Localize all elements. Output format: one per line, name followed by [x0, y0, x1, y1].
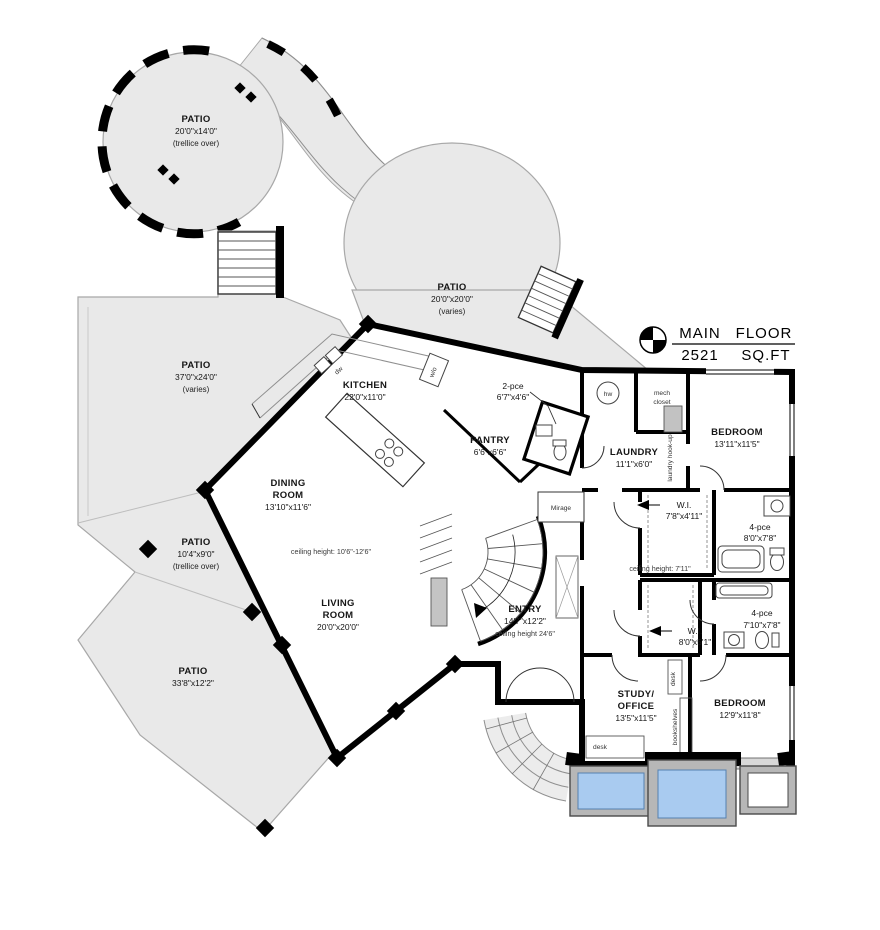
north-compass-icon	[640, 327, 666, 353]
kitchen-dims: 22'0"x11'0"	[344, 392, 385, 402]
entry-ceiling: ceiling height 24'6"	[495, 629, 555, 638]
bedroom-se-name: BEDROOM	[714, 698, 766, 709]
patio-ul-dims: 20'0"x14'0"	[175, 126, 217, 136]
pool-left	[578, 773, 644, 809]
dining-name1: DINING	[270, 478, 305, 489]
study-dims: 13'5"x11'5"	[615, 713, 656, 723]
living-name1: LIVING	[321, 598, 354, 609]
bedroom-ne-name: BEDROOM	[711, 427, 763, 438]
title-block: MAIN FLOOR 2521 SQ.FT	[640, 325, 795, 364]
title-floor: FLOOR	[736, 325, 793, 342]
entry-name: ENTRY	[508, 604, 542, 615]
bath-north-dims: 8'0"x7'8"	[744, 533, 776, 543]
wi-north-name: W.I.	[677, 500, 692, 510]
bedroom-se-dims: 12'9"x11'8"	[719, 710, 760, 720]
pantry-name: PANTRY	[470, 435, 510, 446]
patio-w-dims: 37'0"x24'0"	[175, 372, 217, 382]
floor-plan-svg: MAIN FLOOR 2521 SQ.FT PATIO 20'0"x14'0" …	[0, 0, 880, 930]
patio-ul-name: PATIO	[181, 114, 210, 125]
living-name2: ROOM	[323, 610, 354, 621]
wi-south-dims: 8'0"x5'1"	[679, 637, 711, 647]
ceiling-hall-note: ceiling height: 7'11"	[629, 564, 691, 573]
desk-label-2: desk	[670, 671, 677, 686]
patio-w-name: PATIO	[181, 360, 210, 371]
patio-sw-name: PATIO	[181, 537, 210, 548]
mech-closet-unit	[664, 406, 682, 432]
bath-south-dims: 7'10"x7'8"	[743, 620, 780, 630]
powder-name: 2-pce	[502, 381, 524, 391]
wi-south-name: W.I.	[688, 626, 703, 636]
upper-stair-wall	[276, 226, 284, 298]
stair-shaft	[431, 578, 447, 626]
patio-w-note: (varies)	[183, 385, 210, 394]
bath-north-name: 4-pce	[749, 522, 771, 532]
patio-s-name: PATIO	[178, 666, 207, 677]
study-name1: STUDY/	[618, 689, 655, 700]
mirage-label: Mirage	[551, 505, 571, 512]
entry-dims: 14'7"x12'2"	[504, 616, 546, 626]
laundry-name: LAUNDRY	[610, 447, 659, 458]
floor-plan-page: MAIN FLOOR 2521 SQ.FT PATIO 20'0"x14'0" …	[0, 0, 880, 930]
patio-ul-note: (trellice over)	[173, 139, 220, 148]
upper-stair	[218, 226, 284, 298]
patio-s-dims: 33'8"x12'2"	[172, 678, 214, 688]
laundry-dims: 11'1"x6'0"	[616, 459, 653, 469]
title-area: 2521	[681, 347, 718, 364]
desk-label-1: desk	[593, 744, 608, 751]
laundry-hookup-label: laundry hook-up	[667, 434, 674, 482]
bedroom-ne-dims: 13'11"x11'5"	[714, 439, 759, 449]
patio-sw-dims: 10'4"x9'0"	[177, 549, 214, 559]
kitchen-name: KITCHEN	[343, 380, 387, 391]
patio-c-dims: 20'0"x20'0"	[431, 294, 473, 304]
patio-sw-note: (trellice over)	[173, 562, 220, 571]
dining-name2: ROOM	[273, 490, 304, 501]
planter	[748, 773, 788, 807]
powder-dims: 6'7"x4'6"	[497, 392, 529, 402]
dining-dims: 13'10"x11'6"	[265, 502, 311, 512]
ceiling-main-note: ceiling height: 10'6"-12'6"	[291, 547, 372, 556]
entry-closet	[556, 556, 578, 618]
hw-label: hw	[604, 391, 613, 398]
patio-c-name: PATIO	[437, 282, 466, 293]
mech-label-1: mech	[654, 390, 670, 397]
pantry-dims: 6'6"x6'6"	[474, 447, 506, 457]
study-name2: OFFICE	[618, 701, 655, 712]
living-dims: 20'0"x20'0"	[317, 622, 359, 632]
bath-south-name: 4-pce	[751, 608, 773, 618]
patio-c-note: (varies)	[439, 307, 466, 316]
bookshelves-label: bookshelves	[672, 708, 679, 745]
title-main: MAIN	[679, 325, 721, 342]
title-unit: SQ.FT	[741, 347, 790, 364]
wi-north-dims: 7'8"x4'11"	[666, 511, 703, 521]
mech-label-2: closet	[653, 399, 670, 406]
pool-mid	[658, 770, 726, 818]
